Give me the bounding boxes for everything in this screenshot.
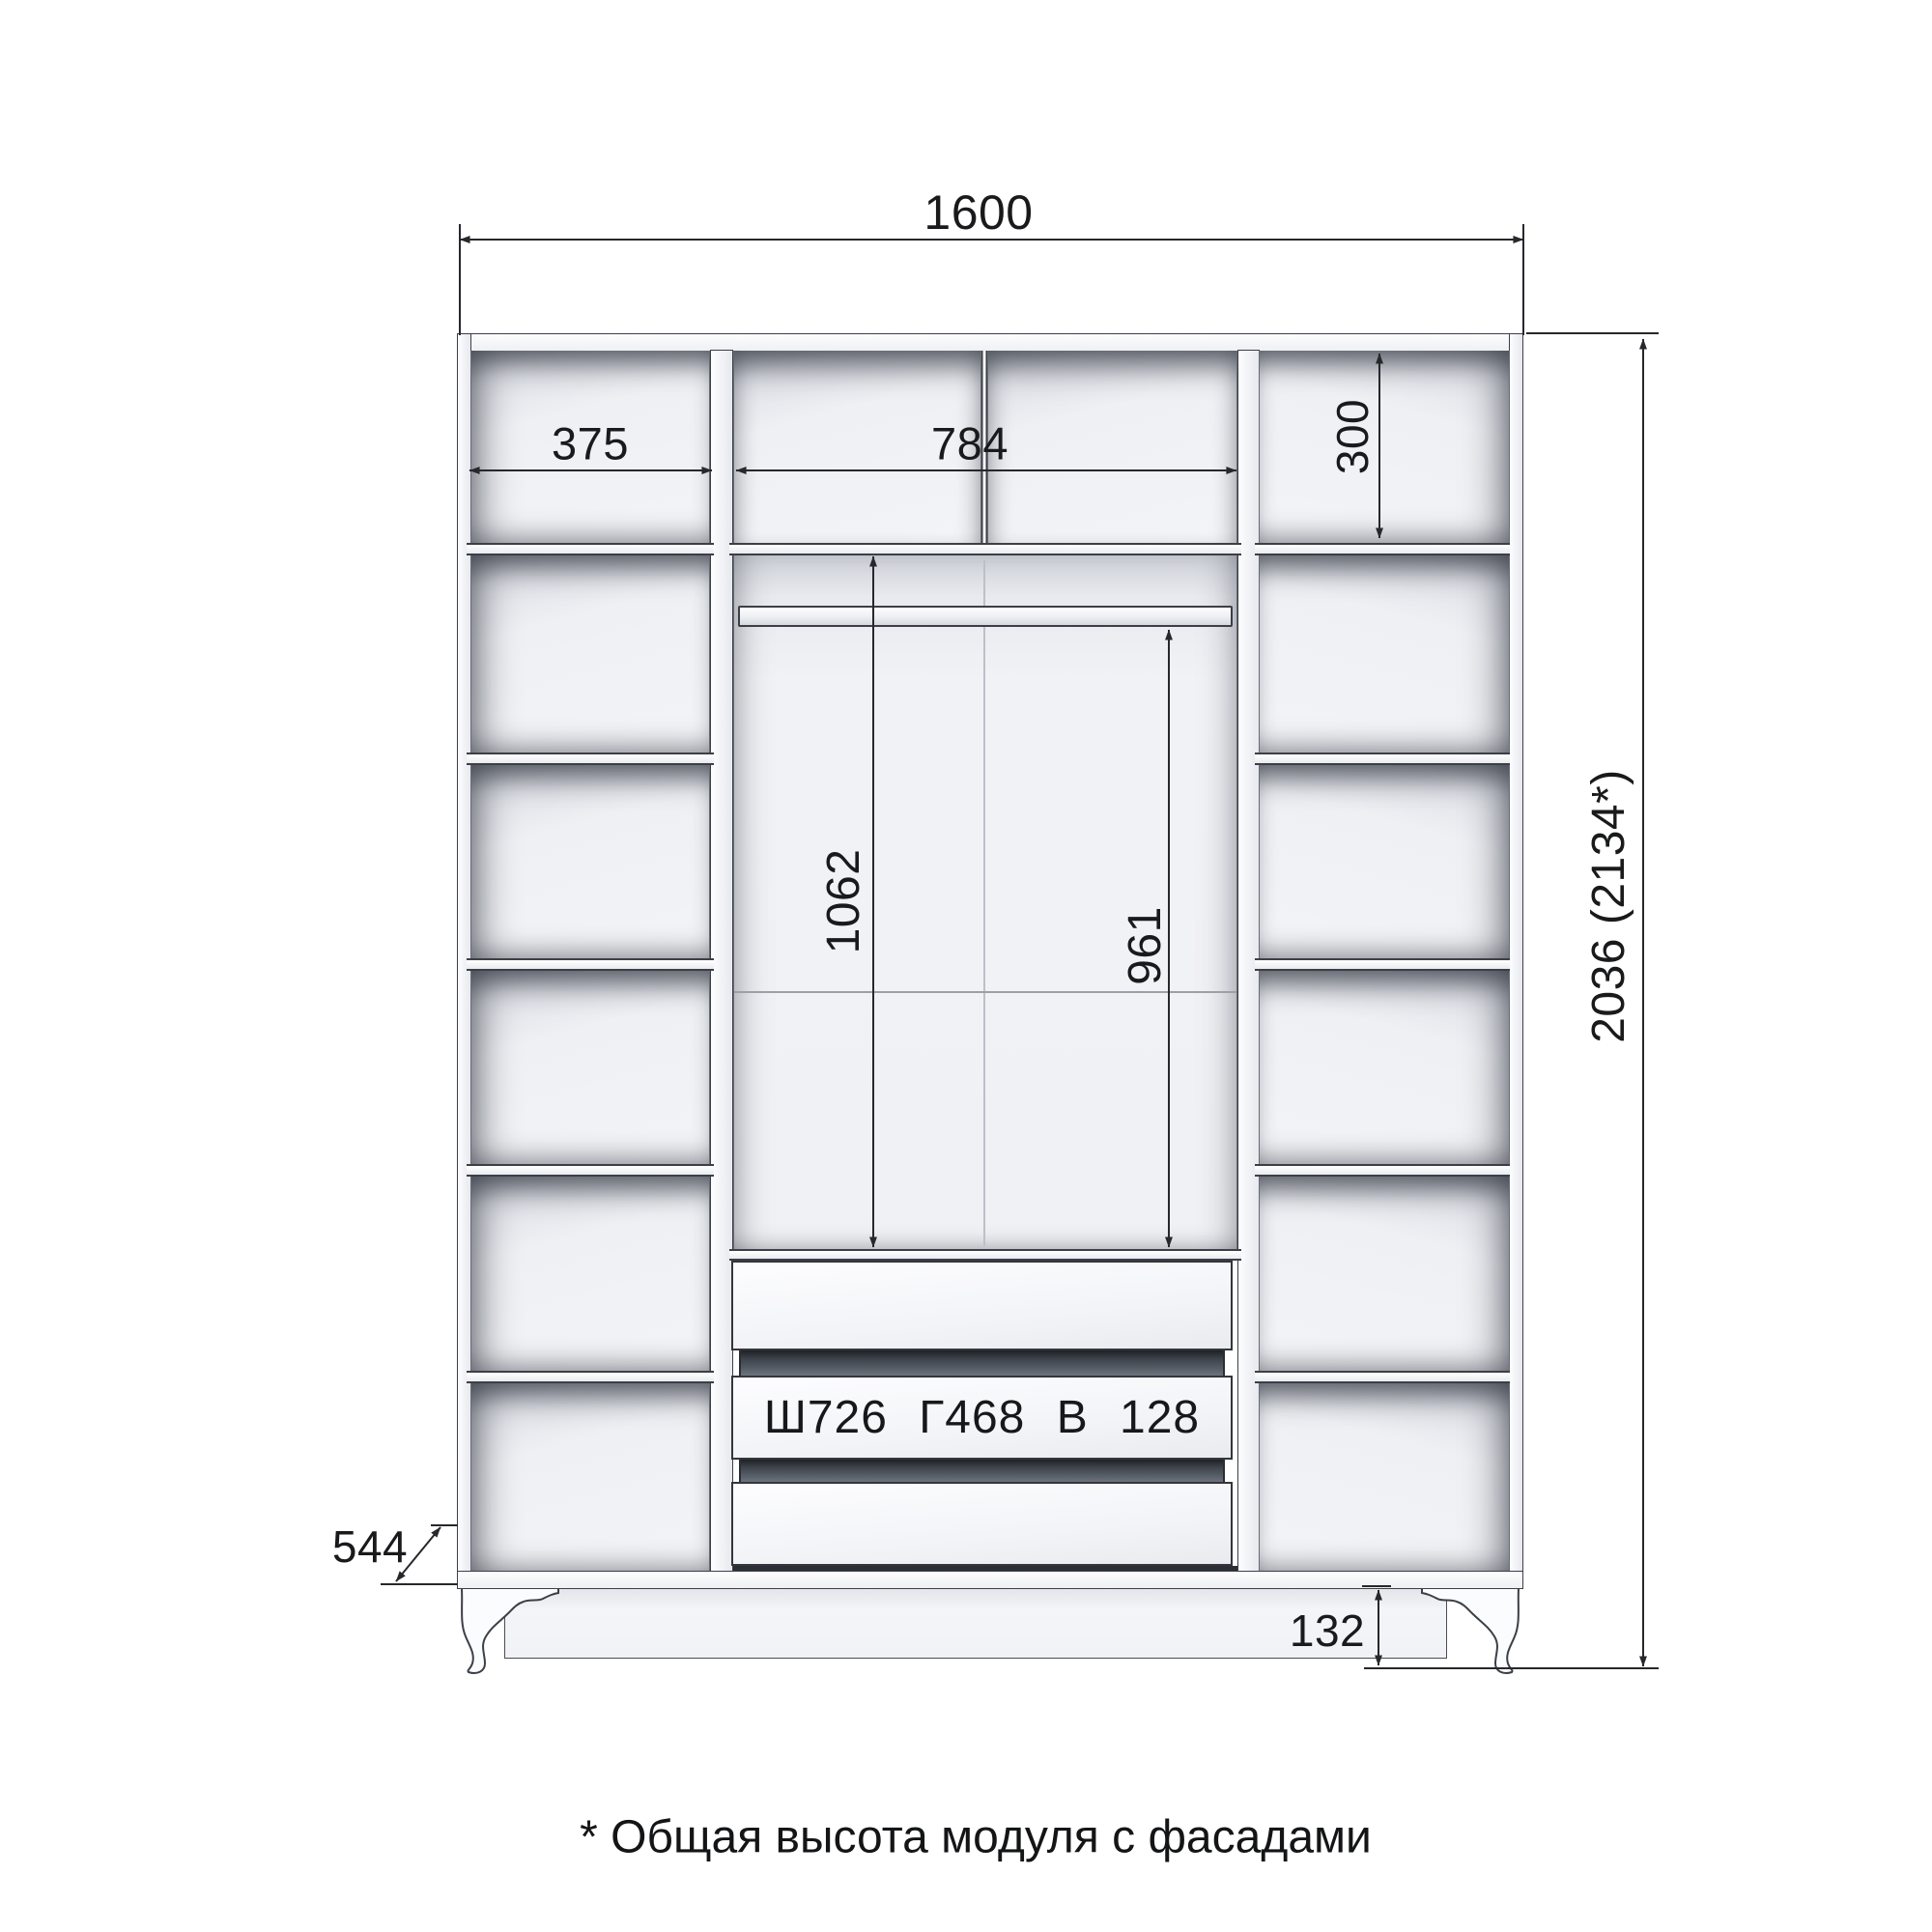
left-shelf-1 [467,543,714,555]
overall-height-label: 2036 (2134*) [1586,769,1633,1043]
overall-width-label: 1600 [923,188,1033,237]
left-compartment-5 [470,1177,710,1371]
left-compartment-2 [470,555,710,753]
right-shelf-5 [1255,1371,1510,1383]
right-front-leg [1420,1588,1520,1675]
left-compartment-4 [470,971,710,1164]
drawer-dimensions-label: Ш726 Г468 В 128 [764,1391,1200,1444]
left-compartment-6 [470,1383,710,1573]
right-side-panel [1509,333,1523,1589]
footnote-text: * Общая высота модуля с фасадами [580,1811,1372,1864]
right-compartment-3 [1259,765,1510,958]
right-shelf-2 [1255,753,1510,765]
depth-label: 544 [332,1524,408,1569]
hanging-rod [738,606,1233,627]
rod-to-drawers-height-label: 961 [1122,906,1169,985]
right-compartment-5 [1259,1177,1510,1371]
middle-open-area [733,555,1237,1251]
right-shelf-4 [1255,1164,1510,1177]
right-compartment-6 [1259,1383,1510,1573]
left-shelf-3 [467,958,714,971]
furniture-drawing-canvas: Ш726 Г468 В 128 [0,0,1932,1932]
plinth-height-label: 132 [1290,1608,1365,1653]
drawer-front-1 [731,1261,1233,1350]
bottom-panel [457,1571,1523,1589]
left-shelf-4 [467,1164,714,1177]
right-compartment-4 [1259,971,1510,1164]
drawer-gap-1 [739,1350,1225,1376]
left-shelf-5 [467,1371,714,1383]
left-compartment-3 [470,765,710,958]
back-panel-vertical-seam [983,560,985,1246]
middle-shelf [729,543,1241,555]
right-compartment-1 [1259,351,1510,543]
center-section-width-label: 784 [931,421,1009,467]
right-shelf-1 [1255,543,1510,555]
right-compartment-2 [1259,555,1510,753]
shelf-to-drawers-height-label: 1062 [821,849,867,954]
left-front-leg [460,1588,560,1675]
drawer-gap-2 [739,1460,1225,1482]
drawer-front-2: Ш726 Г468 В 128 [731,1376,1233,1460]
left-section-width-label: 375 [552,421,629,467]
top-panel [457,333,1523,352]
back-panel-horizontal-seam [734,991,1236,993]
left-shelf-2 [467,753,714,765]
drawer-unit-top-rail [729,1249,1241,1261]
right-shelf-3 [1255,958,1510,971]
middle-top-compartment-right [987,351,1237,543]
top-shelf-height-label: 300 [1330,399,1375,474]
drawer-front-3 [731,1482,1233,1566]
